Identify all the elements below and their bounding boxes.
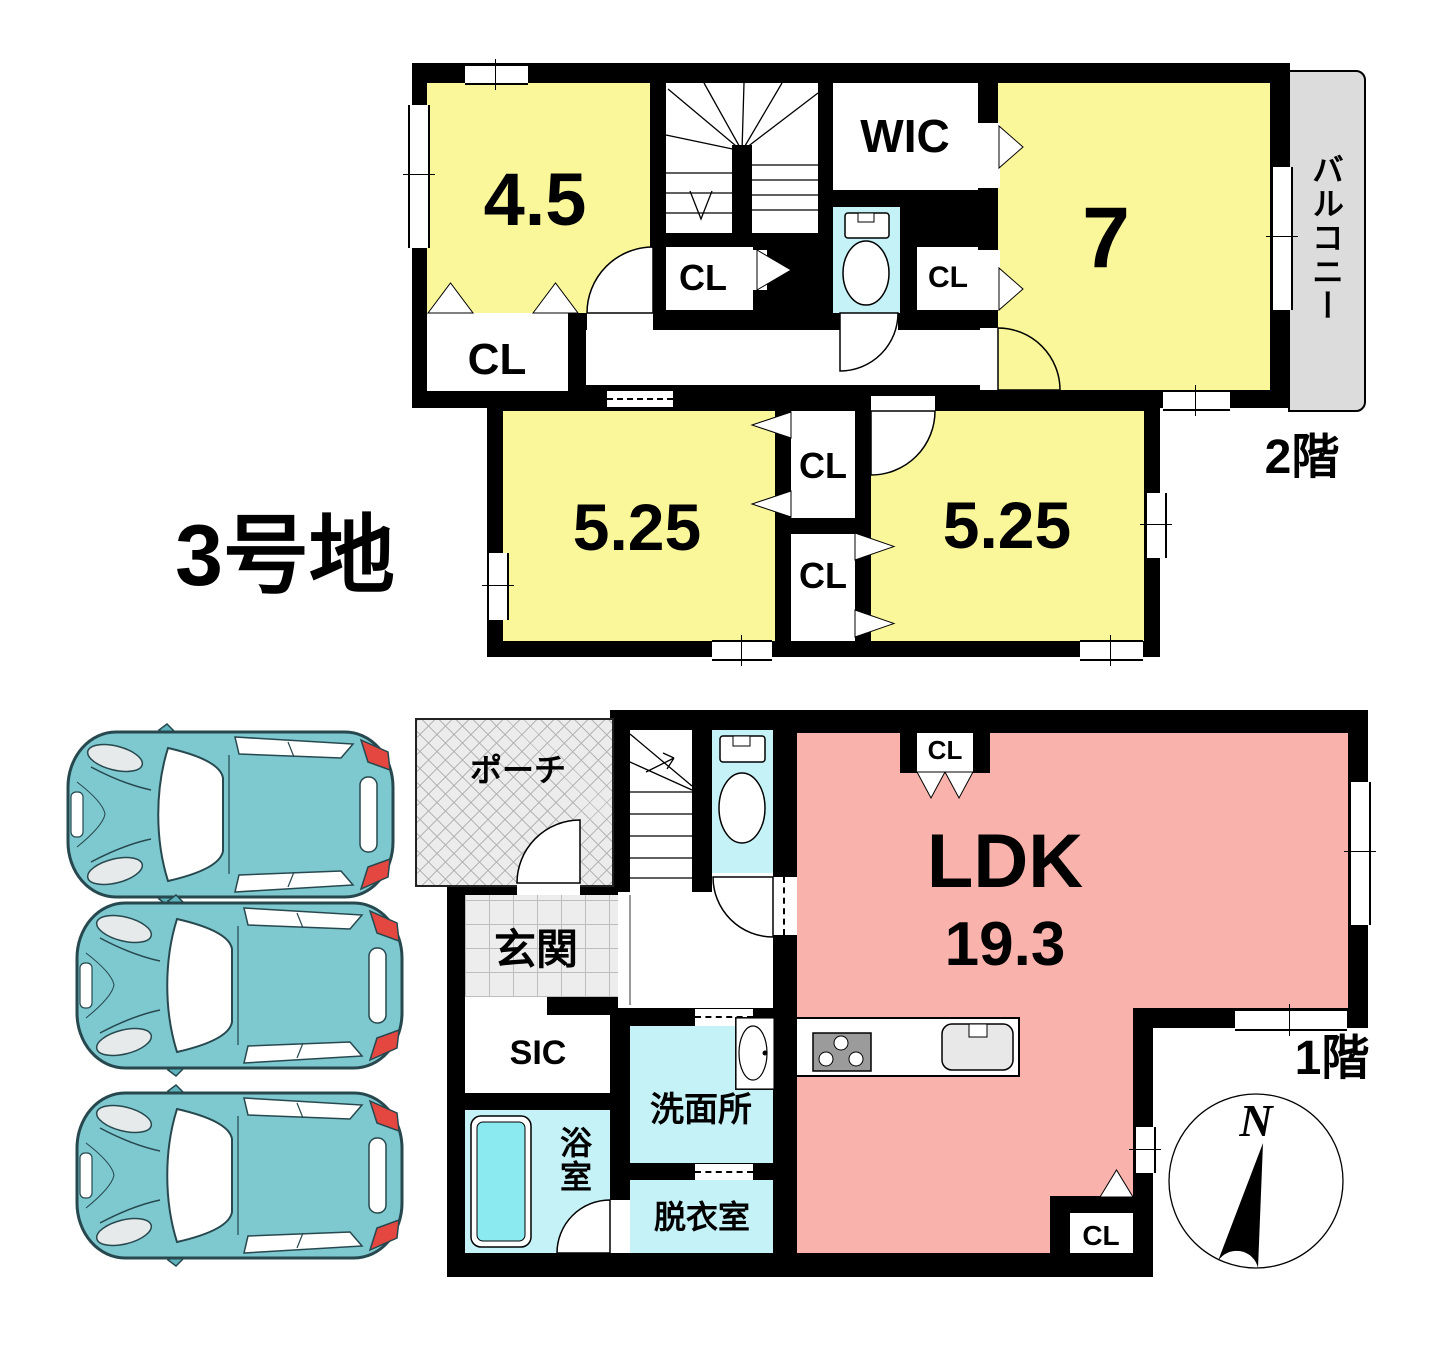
wall xyxy=(1050,1196,1153,1213)
door-gap xyxy=(978,250,1000,310)
car-icon xyxy=(72,1083,407,1268)
room-4-5-label: 4.5 xyxy=(484,163,587,237)
closet-door-icon xyxy=(428,283,473,313)
opening xyxy=(773,877,797,935)
hall-2f xyxy=(586,330,980,385)
sliding-opening xyxy=(695,1164,753,1180)
stove-icon xyxy=(812,1032,872,1072)
stairs-2f xyxy=(666,83,818,233)
door-gap xyxy=(587,313,653,330)
window xyxy=(1349,782,1371,925)
closet-track xyxy=(427,313,568,329)
kitchen-sink-icon xyxy=(940,1022,1015,1072)
washbasin-icon xyxy=(735,1017,775,1090)
closet-label: CL xyxy=(928,263,968,293)
door-gap xyxy=(980,328,998,390)
window xyxy=(1080,640,1143,661)
door-arc xyxy=(557,1200,610,1253)
closet-label: CL xyxy=(928,737,963,763)
toilet-icon xyxy=(836,211,897,309)
dressing-room-label: 脱衣室 xyxy=(654,1201,750,1233)
floor-plan-canvas: N 3号地 4.5 CL CL WIC CL 7 バルコニー 2階 5.25 xyxy=(0,0,1437,1346)
window xyxy=(465,64,528,85)
washroom-label: 洗面所 xyxy=(650,1093,752,1127)
lot-title: 3号地 xyxy=(175,513,395,599)
car-icon xyxy=(72,893,407,1078)
door-swing-icon xyxy=(999,268,1023,310)
window xyxy=(1235,1009,1347,1031)
door-arc xyxy=(587,247,653,313)
door-arc xyxy=(871,411,935,475)
closet-label: CL xyxy=(1082,1222,1119,1250)
stairs-1f xyxy=(630,730,692,892)
bath-label: 浴室 xyxy=(558,1126,590,1194)
porch xyxy=(415,718,614,887)
door-arc xyxy=(713,877,773,937)
sic-label: SIC xyxy=(510,1036,567,1070)
door-gap xyxy=(610,1200,630,1253)
window xyxy=(1163,390,1230,411)
closet-label: CL xyxy=(799,448,847,484)
door-arc xyxy=(998,328,1060,390)
car-icon xyxy=(63,722,398,907)
closet-door-icon xyxy=(855,533,894,560)
room-5-25-label: 5.25 xyxy=(943,492,1071,558)
door-arc xyxy=(840,313,898,371)
room-7-label: 7 xyxy=(1082,195,1130,281)
door-gap xyxy=(871,396,935,411)
door-swing-icon xyxy=(999,126,1023,168)
ldk-area-label: 19.3 xyxy=(945,914,1066,976)
closet-label: CL xyxy=(468,338,527,382)
window xyxy=(1271,167,1293,310)
sliding-opening xyxy=(607,391,673,407)
ldk-label: LDK xyxy=(927,824,1083,900)
step-line xyxy=(629,895,631,1005)
window xyxy=(408,105,430,248)
floor1-label: 1階 xyxy=(1295,1035,1370,1083)
bathtub-icon xyxy=(470,1115,532,1248)
closet-door-icon xyxy=(752,412,791,438)
closet-door-icon xyxy=(945,772,973,798)
porch-label: ポーチ xyxy=(470,754,566,786)
closet-door-icon xyxy=(533,283,578,313)
closet-door-icon xyxy=(917,772,945,798)
closet-door-icon xyxy=(752,491,791,517)
window xyxy=(487,553,509,620)
door-gap xyxy=(978,123,1000,188)
closet-label: CL xyxy=(799,558,847,594)
window xyxy=(1145,493,1167,558)
toilet-icon xyxy=(715,734,770,852)
window xyxy=(1134,1127,1156,1173)
wic-label: WIC xyxy=(860,113,949,159)
room-5-25-label: 5.25 xyxy=(573,494,701,560)
wall xyxy=(1050,1213,1070,1253)
front-door-arc xyxy=(517,820,580,883)
balcony-label: バルコニー xyxy=(1310,153,1342,323)
door-gap xyxy=(465,997,547,1015)
compass-north-label: N xyxy=(1239,1098,1272,1144)
floor2-label: 2階 xyxy=(1265,434,1340,482)
closet-label: CL xyxy=(679,260,727,296)
closet-door-icon xyxy=(855,610,894,637)
entrance-label: 玄関 xyxy=(494,929,578,971)
door-swing-icon xyxy=(757,250,791,290)
window xyxy=(712,640,772,661)
closet-door-icon xyxy=(1100,1170,1133,1197)
